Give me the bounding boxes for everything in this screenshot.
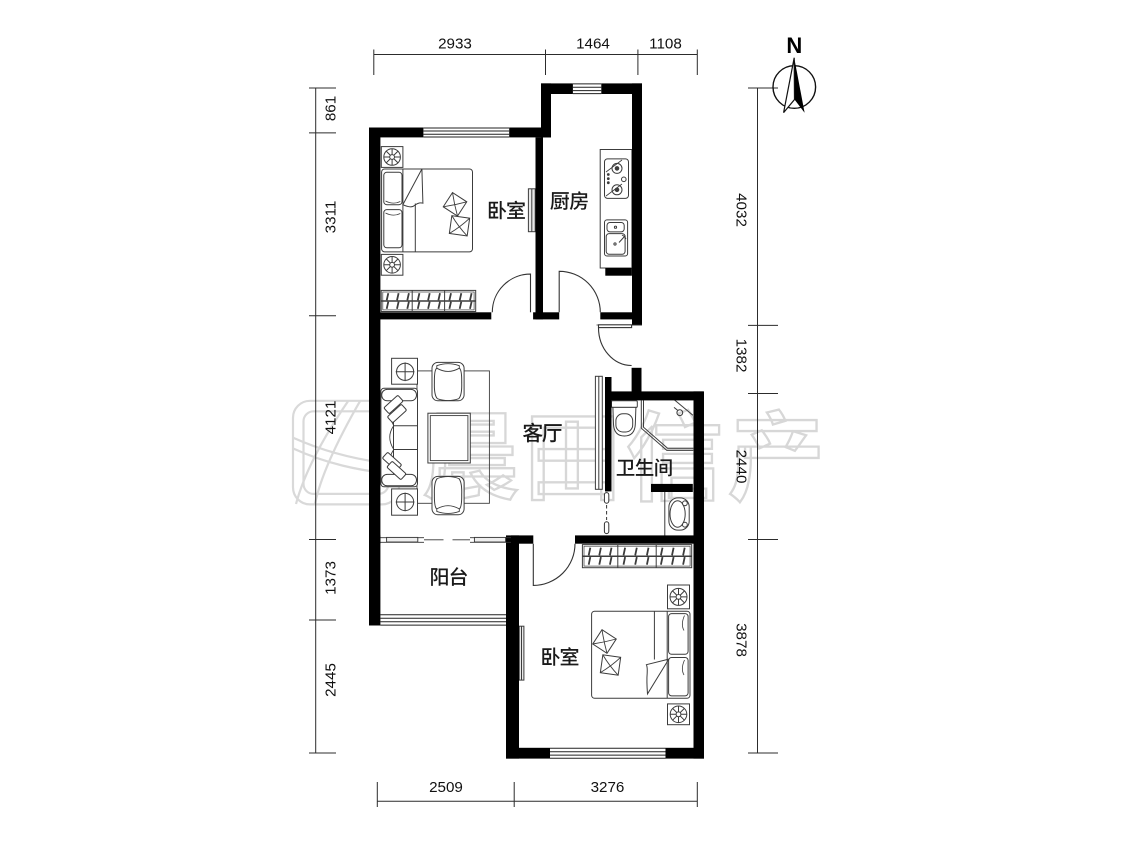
- svg-text:1464: 1464: [576, 36, 610, 53]
- svg-text:861: 861: [322, 96, 339, 121]
- svg-text:1382: 1382: [733, 339, 750, 373]
- svg-text:2445: 2445: [322, 663, 339, 697]
- svg-text:3311: 3311: [322, 201, 339, 234]
- svg-text:4121: 4121: [322, 401, 339, 435]
- svg-text:2440: 2440: [733, 450, 750, 484]
- svg-text:2933: 2933: [438, 36, 472, 53]
- svg-text:3276: 3276: [591, 779, 625, 796]
- svg-text:1373: 1373: [322, 561, 339, 595]
- svg-text:3878: 3878: [733, 623, 750, 657]
- svg-text:2509: 2509: [429, 779, 463, 796]
- svg-text:1108: 1108: [649, 36, 682, 53]
- svg-text:4032: 4032: [733, 193, 750, 227]
- svg-text:N: N: [786, 33, 802, 58]
